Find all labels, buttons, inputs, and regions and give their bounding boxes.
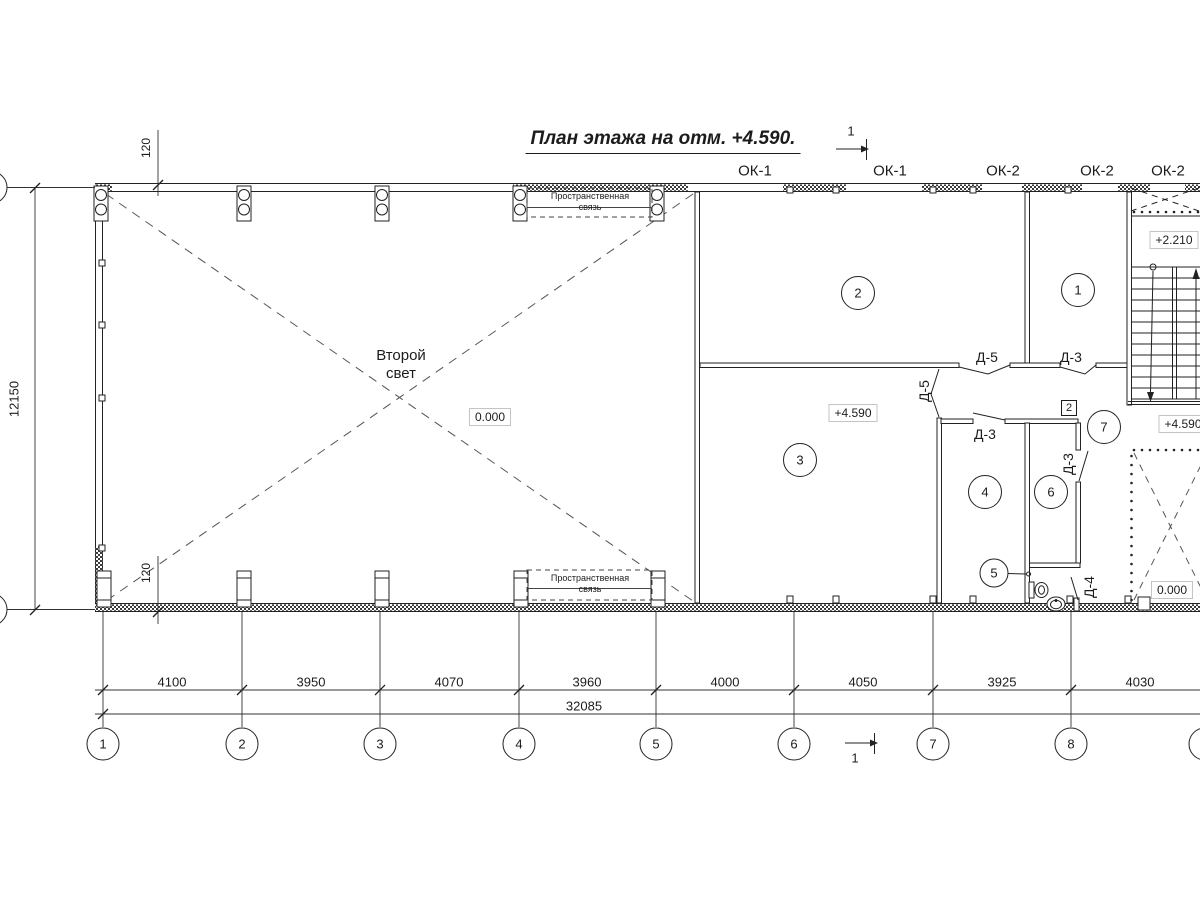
floor-plan-drawing: План этажа на отм. +4.590. 1 1 ОК-1 ОК-1…: [0, 0, 1200, 900]
dim-segment-4: 3960: [573, 675, 602, 690]
elevation-opening: 0.000: [1151, 581, 1193, 599]
stair-landing-dots: [1133, 211, 1200, 214]
floor-opening-dots: [1130, 449, 1199, 602]
room-number-5: 5: [990, 566, 997, 581]
elevation-stair-mid: +2.210: [1149, 231, 1198, 249]
window-label-ok2-b: ОК-2: [1080, 163, 1114, 180]
dim-total: 32085: [566, 699, 602, 714]
outer-walls: [95, 184, 1200, 612]
grid-axis-4: 4: [515, 737, 522, 752]
grid-axis-8: 8: [1067, 737, 1074, 752]
window-label-ok1-b: ОК-1: [873, 163, 907, 180]
room-number-4: 4: [981, 485, 988, 500]
elevation-room3: +4.590: [828, 404, 877, 422]
wc-sink: [1047, 597, 1065, 611]
spatial-brace-boxes: [527, 188, 652, 600]
dim-segment-1: 4100: [158, 675, 187, 690]
room-number-2: 2: [854, 286, 861, 301]
door-label-d5-side: Д-5: [916, 380, 932, 402]
section-mark-top-label: 1: [847, 124, 854, 139]
room-number-7: 7: [1100, 420, 1107, 435]
dimension-ticks: [30, 180, 1076, 719]
grid-axis-7: 7: [929, 737, 936, 752]
room-number-3: 3: [796, 453, 803, 468]
section-arrows: [836, 139, 878, 754]
door-label-d4-wc: Д-4: [1081, 576, 1097, 598]
elevation-hall: 0.000: [469, 408, 511, 426]
dim-segment-5: 4000: [711, 675, 740, 690]
grid-axis-6: 6: [790, 737, 797, 752]
node-marker-2: 2: [1061, 400, 1077, 416]
door-label-d3-room4: Д-3: [974, 426, 996, 442]
wall-window-hatch: [95, 184, 1200, 610]
grid-axis-circles: [0, 172, 1200, 761]
door-label-d3-top: Д-3: [1060, 349, 1082, 365]
room-number-1: 1: [1074, 283, 1081, 298]
dim-segment-2: 3950: [297, 675, 326, 690]
grid-axis-1: 1: [99, 737, 106, 752]
window-label-ok2-c: ОК-2: [1151, 163, 1185, 180]
section-mark-bottom-label: 1: [851, 751, 858, 766]
drawing-title: План этажа на отм. +4.590.: [526, 128, 801, 154]
grid-axis-2: 2: [238, 737, 245, 752]
second-light-label: Второй свет: [376, 347, 426, 383]
stairs: [1128, 188, 1200, 405]
dim-segment-7: 3925: [988, 675, 1017, 690]
dim-height: 12150: [7, 381, 22, 417]
dimension-lines: [0, 130, 1200, 727]
hall-diagonals: [106, 194, 693, 601]
window-label-ok1-a: ОК-1: [738, 163, 772, 180]
grid-axis-3: 3: [376, 737, 383, 752]
wc-toilet: [1029, 582, 1048, 598]
dim-offset-bottom: 120: [139, 563, 153, 583]
spatial-brace-label-top: Пространственная связь: [551, 191, 629, 213]
grid-axis-5: 5: [652, 737, 659, 752]
window-label-ok2-a: ОК-2: [986, 163, 1020, 180]
door-label-d3-room6: Д-3: [1060, 453, 1076, 475]
elevation-stair-top: +4.590: [1158, 415, 1200, 433]
dim-segment-6: 4050: [849, 675, 878, 690]
dim-segment-8: 4030: [1126, 675, 1155, 690]
wall-markers: [99, 187, 1131, 603]
room-circles: [784, 274, 1121, 588]
room-number-6: 6: [1047, 485, 1054, 500]
dim-segment-3: 4070: [435, 675, 464, 690]
door-label-d5-top: Д-5: [976, 349, 998, 365]
dim-offset-top: 120: [139, 138, 153, 158]
spatial-brace-label-bottom: Пространственная связь: [551, 573, 629, 595]
